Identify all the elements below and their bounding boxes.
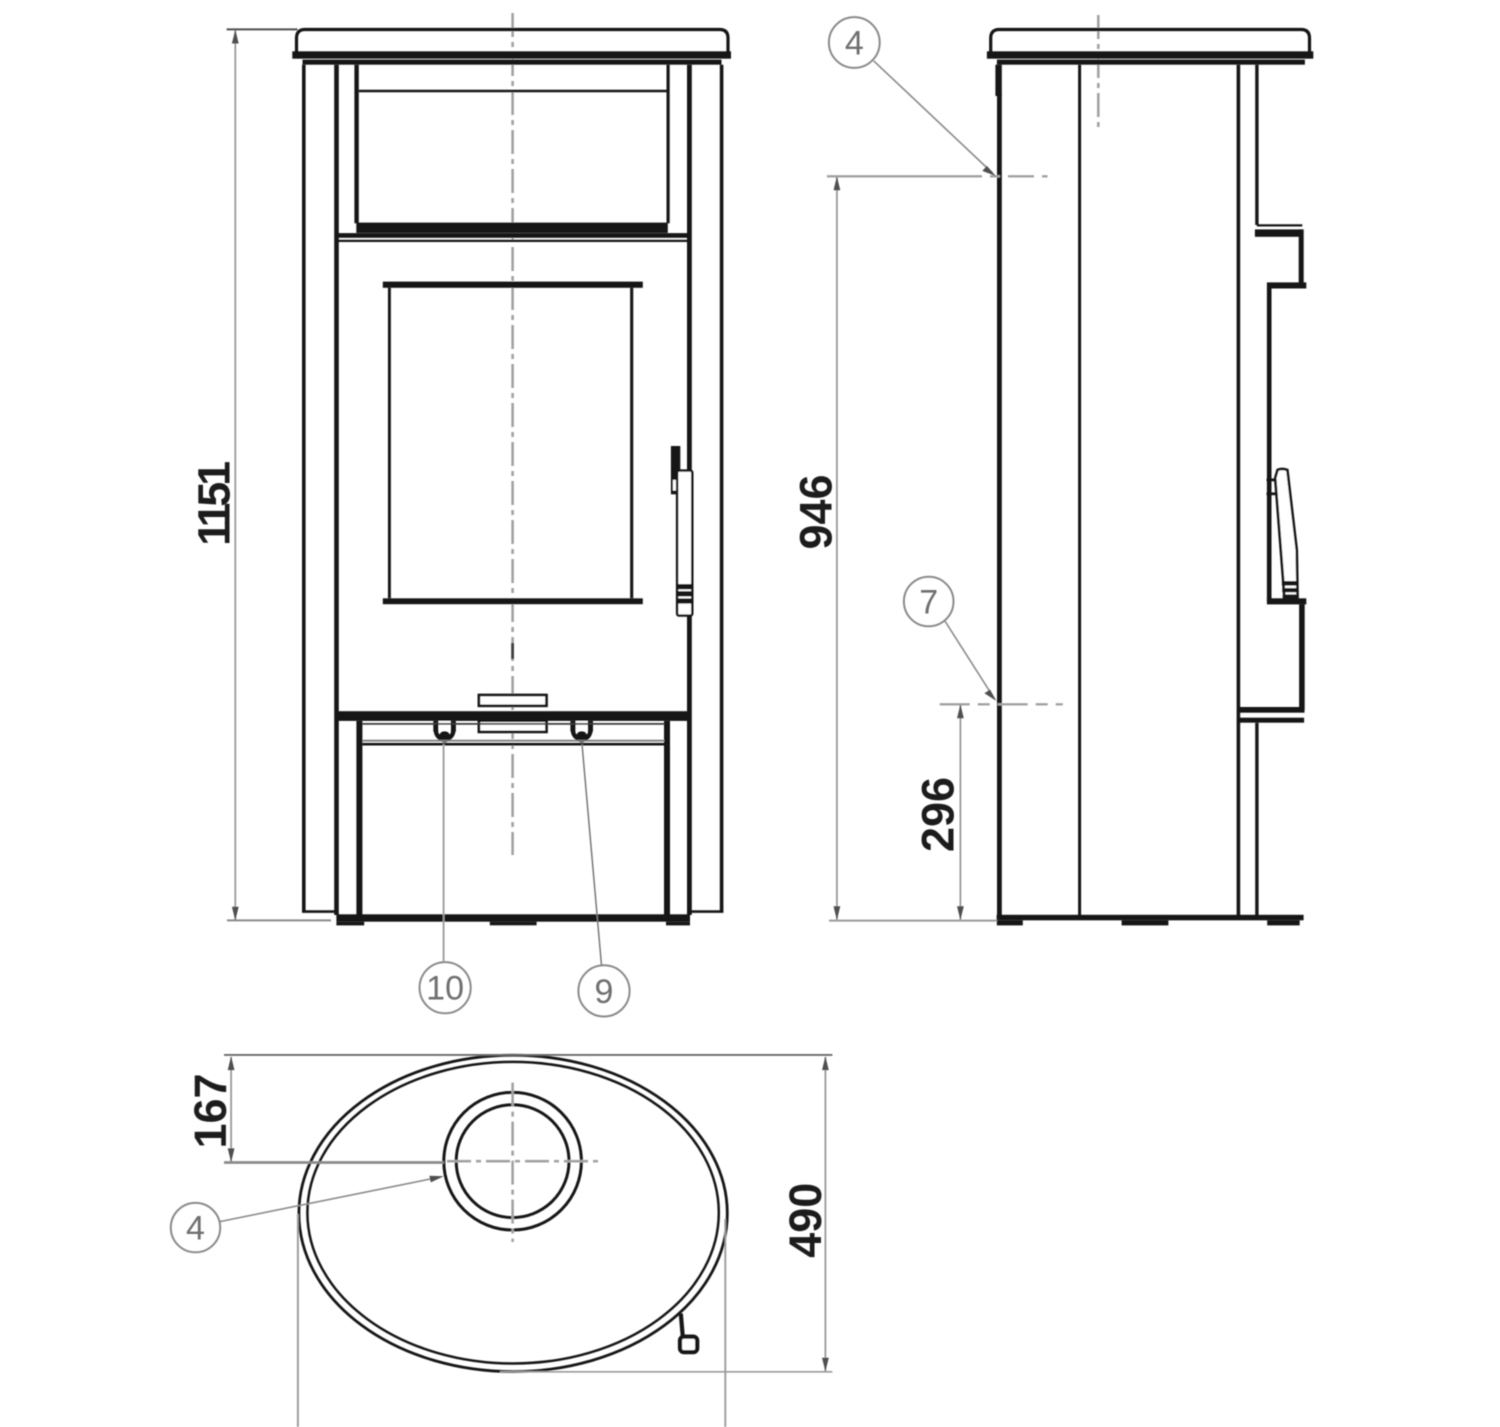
svg-text:167: 167 — [185, 1074, 236, 1149]
svg-text:9: 9 — [595, 973, 614, 1011]
svg-text:10: 10 — [426, 970, 464, 1008]
svg-text:7: 7 — [919, 584, 938, 622]
svg-text:296: 296 — [913, 777, 964, 852]
svg-text:490: 490 — [780, 1183, 831, 1258]
svg-text:4: 4 — [845, 25, 864, 63]
svg-text:946: 946 — [791, 475, 842, 550]
svg-text:1151: 1151 — [188, 461, 239, 546]
svg-text:4: 4 — [186, 1210, 205, 1248]
